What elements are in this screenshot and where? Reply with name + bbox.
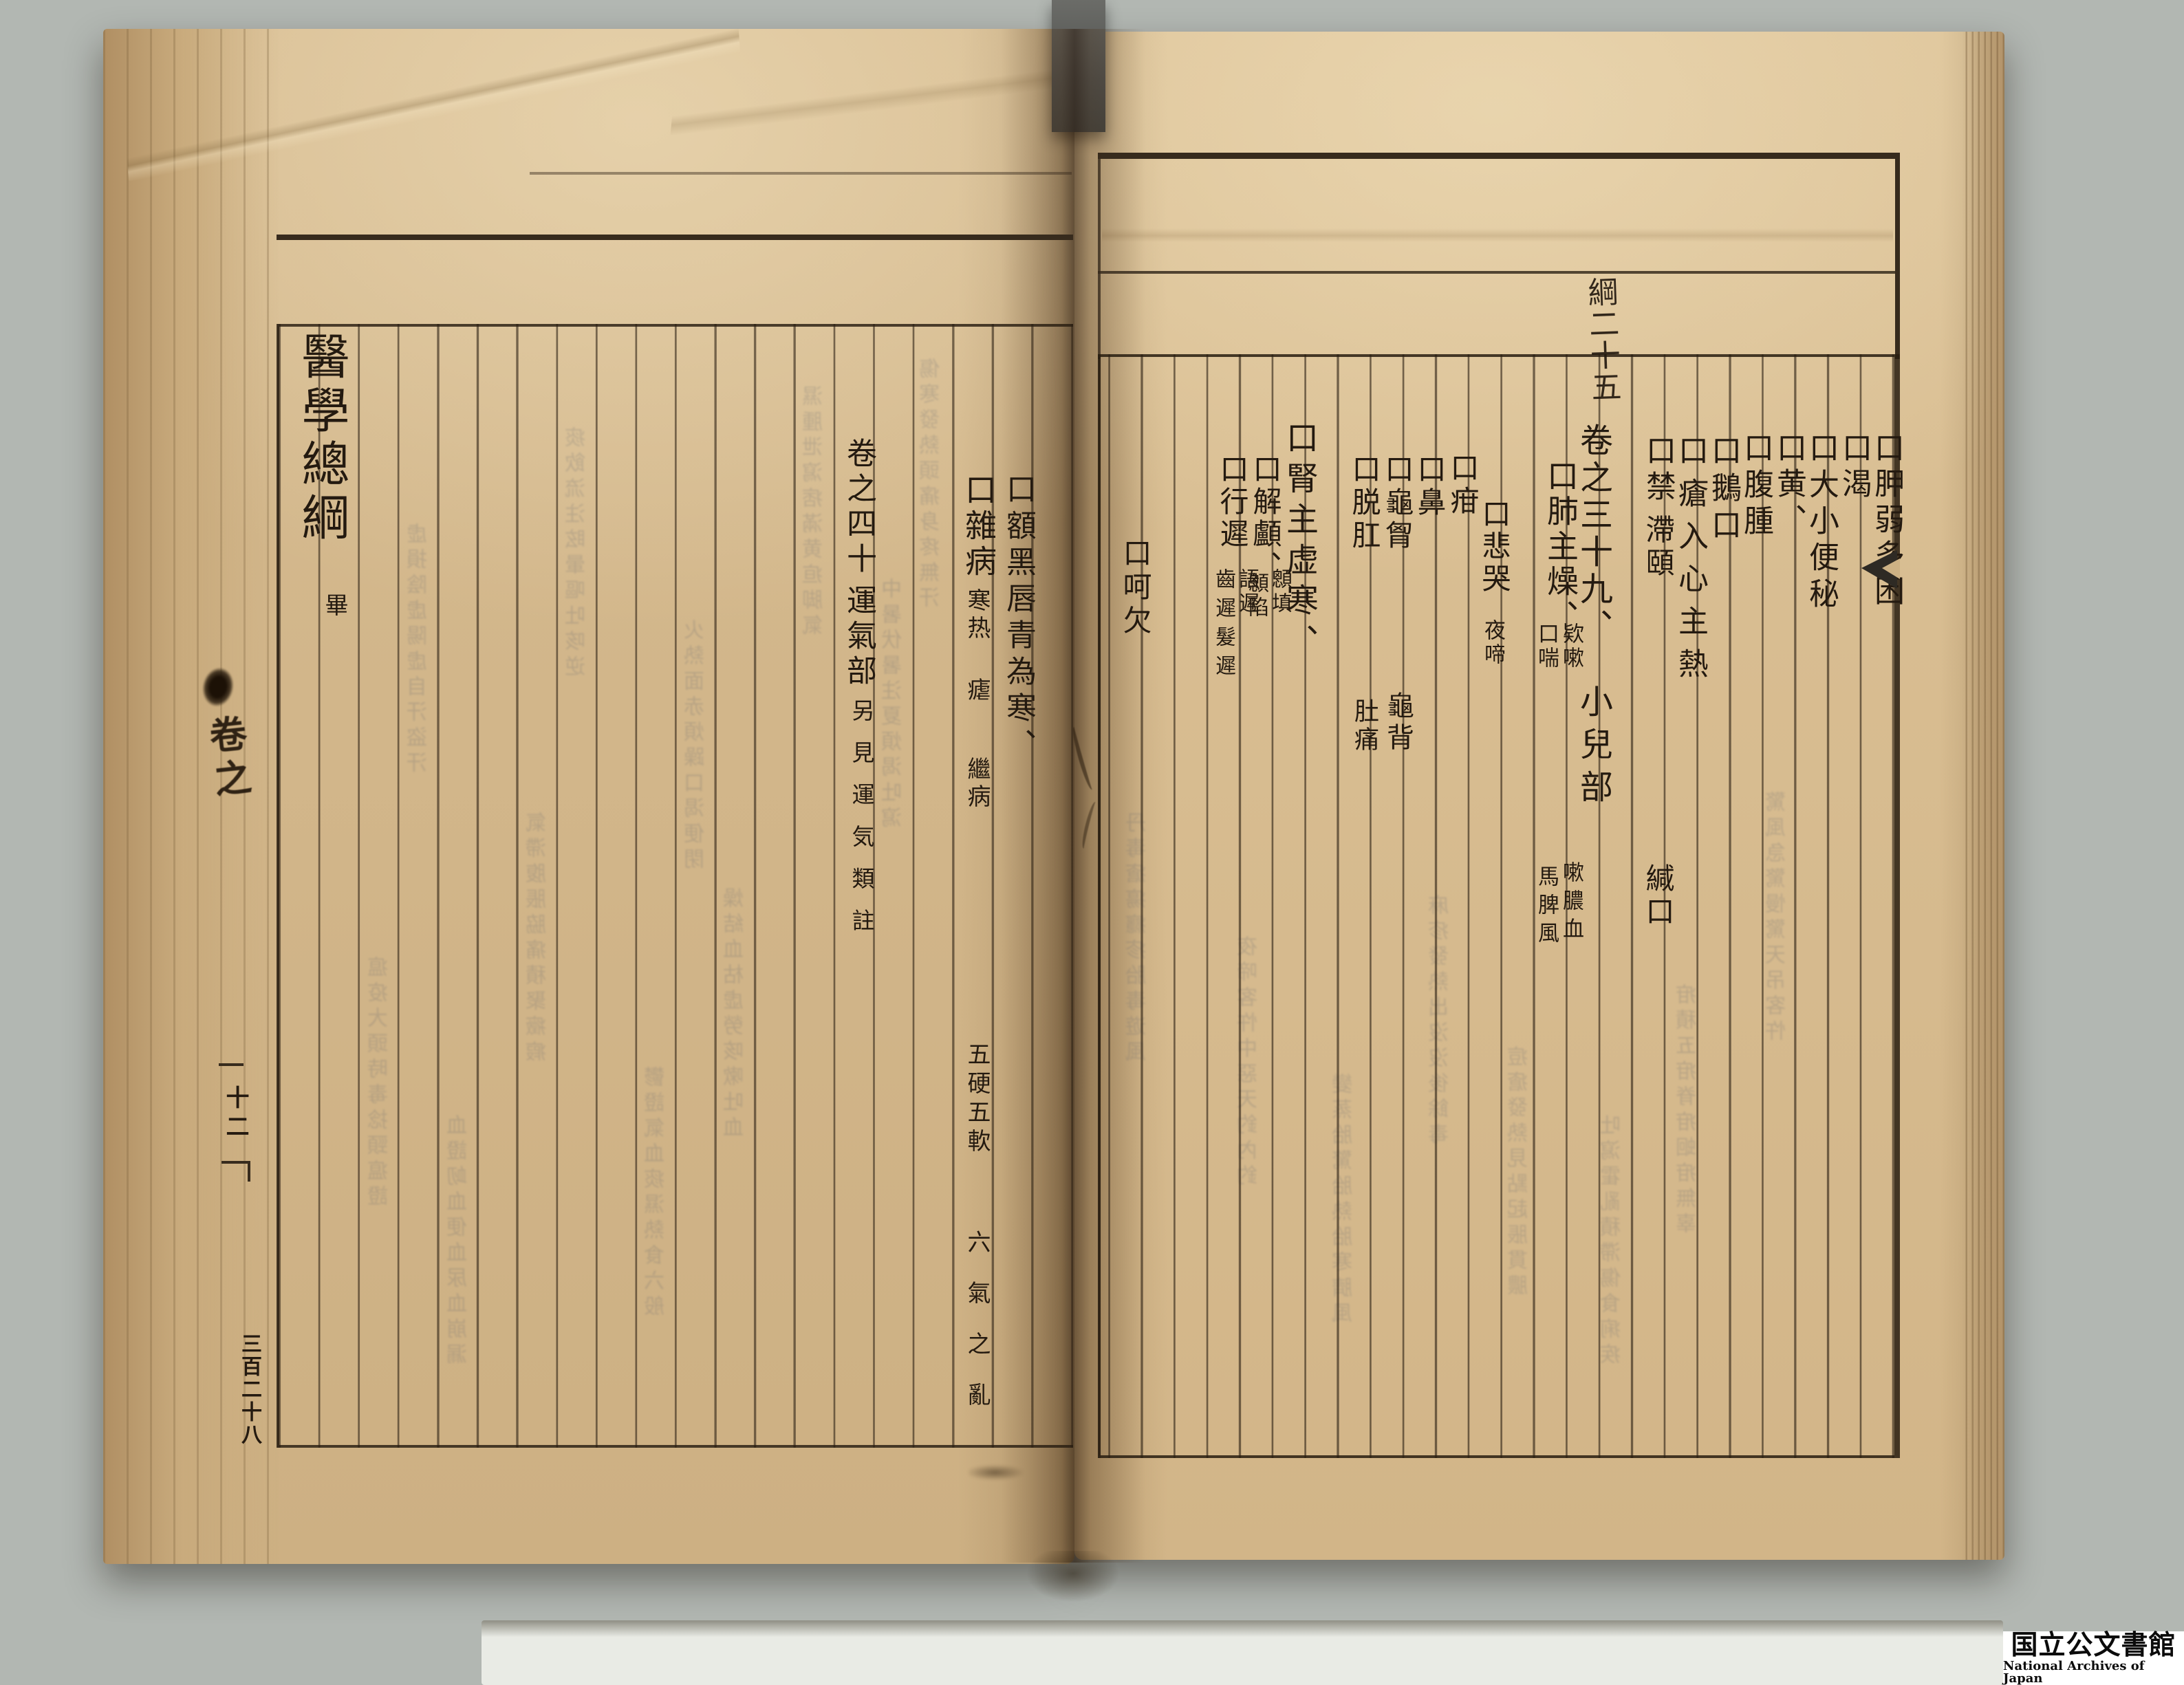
ink-smear [969,1464,1035,1481]
subentry-delayed-teeth-hair: 齒遲髮遲 [1208,568,1238,684]
subentry-night-crying: 夜啼 [1478,619,1509,667]
subentry-chills-fever: 寒热 [960,588,994,643]
corner-fold-highlight [1882,558,1900,579]
gutter-bottom-shadow [1011,1551,1135,1627]
page-number: 三百二十八 [234,1333,264,1446]
right-page-top-border [1098,153,1900,159]
header-note: 綱二十五 [1577,276,1625,404]
table-surface [482,1620,2003,1685]
kan-title-40: 卷之四十 [836,437,880,578]
photograph-of-open-book: 綱二十五 口胛弱多困 口渴 口大小便秘 口黄、 口腹腫 口鵝口 口瘡入心主熱 口… [0,0,2184,1685]
entry-black-forehead-blue-lips: 口額黑唇青為寒、 [996,473,1040,765]
folio-number: 十二 [219,1085,252,1143]
subentry-six-qi-disorder: 六氣之亂 [960,1230,994,1433]
subentry-malaria: 瘧 [960,677,994,701]
fore-edge-handwriting: 卷之 [197,713,260,806]
archive-watermark: 国立公文書館 National Archives of Japan [2003,1631,2184,1685]
entry-misc-diseases: 口雜病 [956,473,1002,580]
right-page-band-right [1895,153,1900,359]
fishtail-mark-top [219,1063,244,1066]
watermark-jp: 国立公文書館 [2011,1632,2176,1659]
section-title-children: 小兒部 [1569,684,1617,812]
right-leaf-stack [1962,32,2004,1560]
crease-line [1102,204,1893,265]
subentry-belly-pain: 肚痛 [1346,698,1382,754]
cross-reference-note: 另見運気類註 [845,699,878,950]
right-page-band-left [1098,153,1101,359]
crease-line [120,21,746,181]
left-page-top-border [277,235,1073,240]
closing-title: 醫學總綱 [288,331,357,546]
subentry-jibing: 繼病 [960,757,994,812]
entry-rectal-prolapse: 口脱肛 [1343,454,1385,553]
fishtail-mark-bottom [221,1161,250,1164]
left-page-faint-upper-line [530,172,1072,175]
subentry-wheeze: 口喘 [1531,622,1562,671]
entry-yawning: 口呵欠 [1114,538,1156,639]
entry-lockjaw: 口禁 [1636,435,1680,506]
fishtail-mark-side [248,1161,250,1182]
entry-delayed-walking: 口行遲 [1211,454,1253,551]
entry-lung-dryness: 口肺主燥、 [1538,459,1583,635]
subentry-five-stiff-five-soft: 五硬五軟 [960,1042,994,1157]
entry-pursed-mouth: 緘口 [1637,863,1679,929]
right-page-header-line [1098,271,1900,274]
watermark-en: National Archives of Japan [2003,1660,2184,1685]
subentry-horse-spleen-wind: 馬脾風 [1531,865,1562,950]
subentry-turtle-back: 龜背 [1378,691,1418,754]
closing-end-mark: 畢 [318,593,352,616]
entry-drooling: 滯頤 [1637,514,1679,580]
section-title-yunqi: 運氣部 [836,585,880,690]
left-page-column-grid [277,324,1073,1448]
